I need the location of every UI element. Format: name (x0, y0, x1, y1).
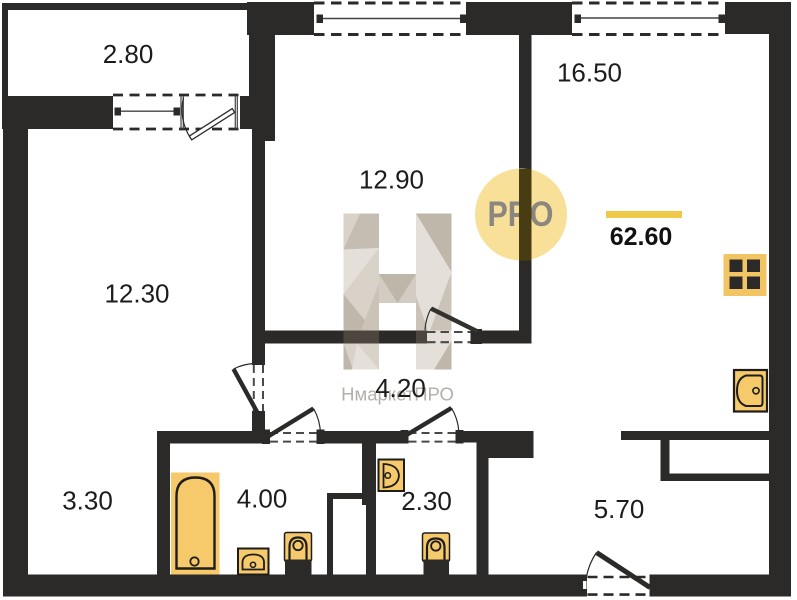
svg-text:5.70: 5.70 (594, 494, 645, 524)
svg-text:2.30: 2.30 (401, 486, 452, 516)
svg-text:2.80: 2.80 (103, 39, 154, 69)
svg-text:12.90: 12.90 (359, 165, 424, 195)
svg-text:3.30: 3.30 (62, 486, 113, 516)
svg-text:62.60: 62.60 (610, 223, 673, 251)
svg-text:12.30: 12.30 (104, 279, 169, 309)
svg-text:4.20: 4.20 (375, 373, 426, 403)
svg-text:16.50: 16.50 (557, 58, 622, 88)
svg-text:4.00: 4.00 (237, 484, 288, 514)
